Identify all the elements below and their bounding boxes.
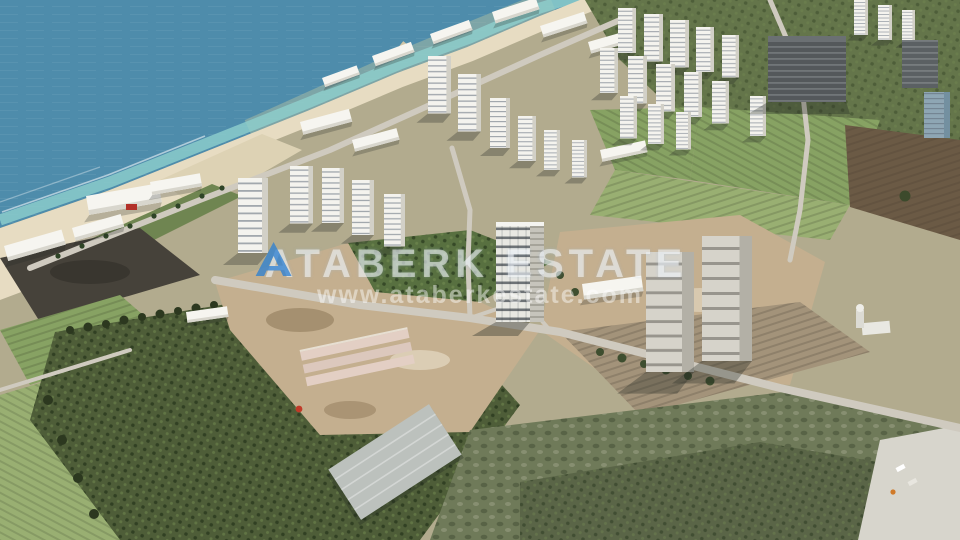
excavator [296,406,303,413]
aerial-photo: ATABERK ESTATE www.ataberkestate.com [0,0,960,540]
glass-tower [924,92,950,138]
red-sign [126,204,137,210]
scene-canvas [0,0,960,540]
lone-tree [900,191,911,202]
